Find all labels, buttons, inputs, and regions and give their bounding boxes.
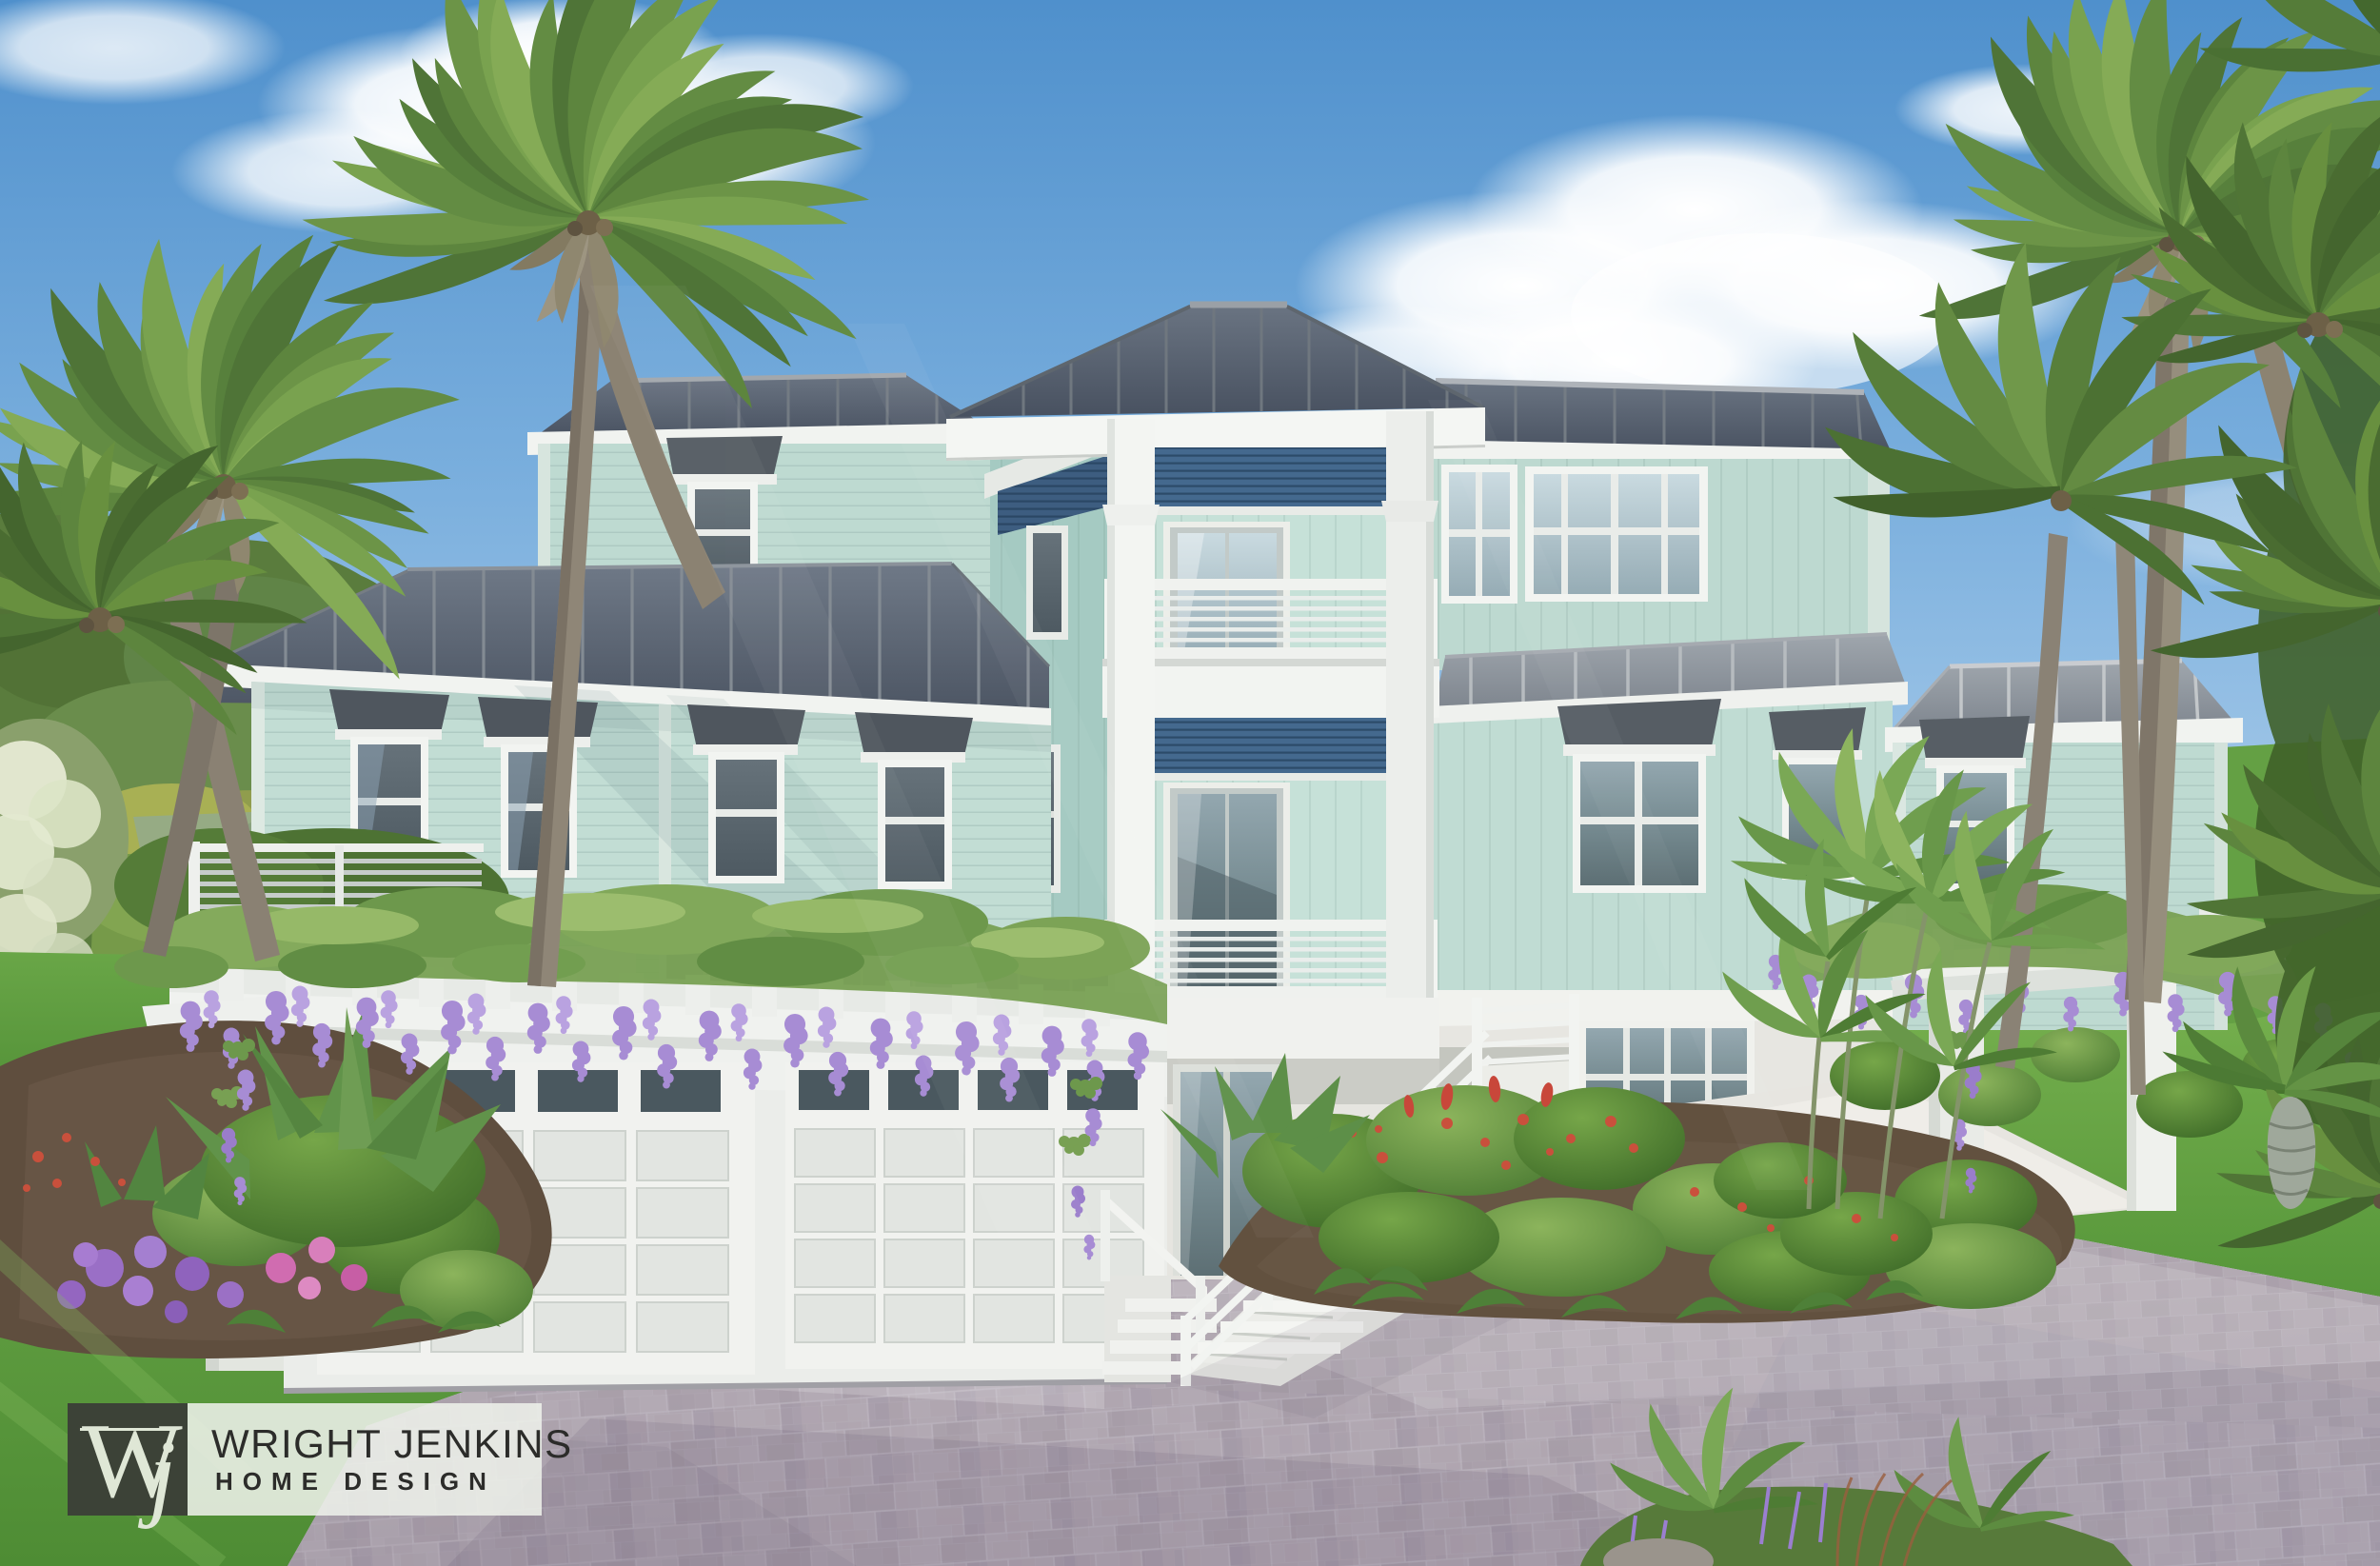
svg-text:WRIGHT JENKINS: WRIGHT JENKINS [211, 1421, 573, 1466]
svg-text:HOME DESIGN: HOME DESIGN [215, 1467, 496, 1496]
